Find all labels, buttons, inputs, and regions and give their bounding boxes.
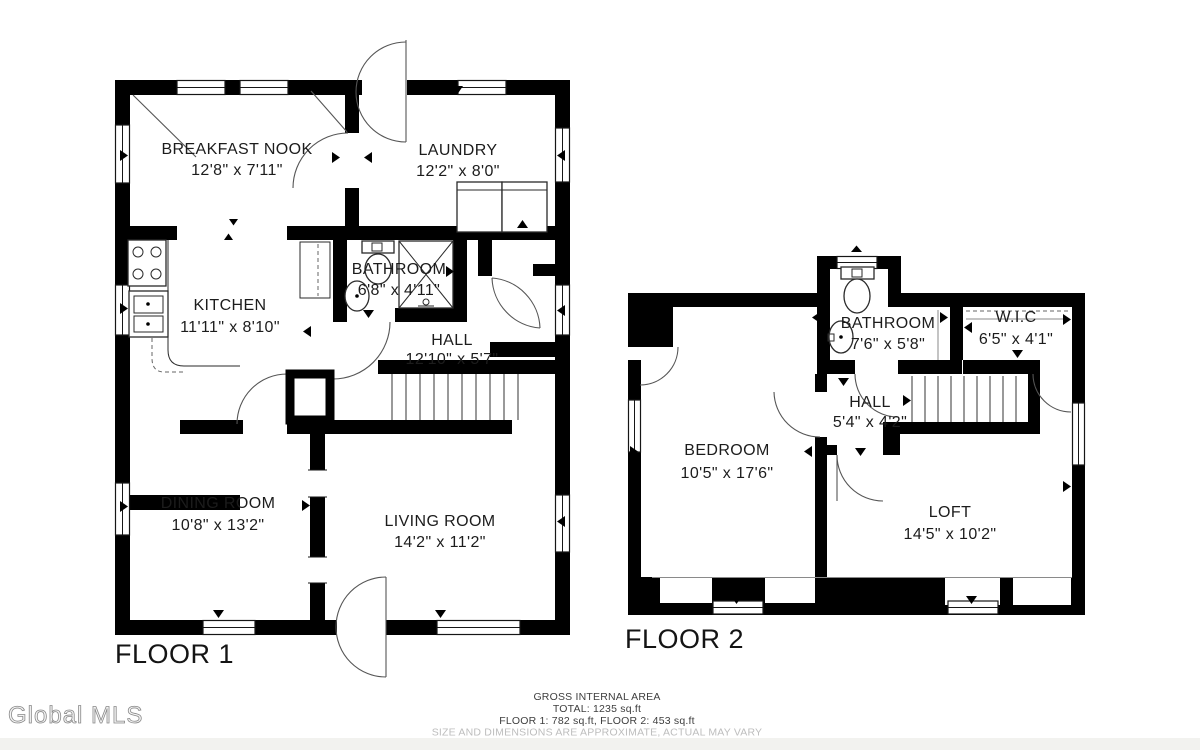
door-swing-arc: [774, 392, 820, 437]
under-stair-closet: [290, 374, 330, 420]
staircase: [912, 376, 1016, 422]
footer-title: GROSS INTERNAL AREA: [533, 691, 660, 703]
room-label-hall2: HALL: [849, 394, 891, 411]
window: [177, 81, 225, 95]
window: [458, 81, 506, 95]
window: [437, 621, 520, 635]
window: [629, 400, 641, 452]
room-dims-bedroom: 10'5" x 17'6": [681, 465, 774, 482]
window: [203, 621, 255, 635]
door-swing-arc: [837, 455, 883, 501]
floorplan-page: BREAKFAST NOOK 12'8" x 7'11" LAUNDRY 12'…: [0, 0, 1200, 750]
room-label-laundry: LAUNDRY: [419, 142, 498, 159]
floor1-plan: BREAKFAST NOOK 12'8" x 7'11" LAUNDRY 12'…: [115, 40, 570, 677]
front-door-opening: [337, 620, 386, 635]
room-dims-kitchen: 11'11" x 8'10": [180, 319, 280, 336]
floor2-plan: BATHROOM 7'6" x 5'8" W.I.C 6'5" x 4'1" H…: [625, 246, 1085, 655]
room-dims-breakfast-nook: 12'8" x 7'11": [191, 162, 283, 179]
room-dims-loft: 14'5" x 10'2": [904, 526, 997, 543]
footer-disclaimer: SIZE AND DIMENSIONS ARE APPROXIMATE, ACT…: [432, 727, 763, 739]
watermark-logo: Global MLS: [8, 702, 143, 729]
room-label-loft: LOFT: [929, 504, 972, 521]
window: [948, 601, 998, 614]
toilet: [841, 267, 874, 313]
room-dims-bathroom1: 6'8" x 4'11": [358, 282, 440, 299]
room-dims-wic: 6'5" x 4'1": [979, 331, 1053, 348]
room-label-bathroom1: BATHROOM: [352, 261, 446, 278]
room-label-wic: W.I.C: [995, 309, 1036, 326]
window: [240, 81, 288, 95]
room-dims-hall1: 12'10" x 5'7": [406, 351, 499, 368]
footer: GROSS INTERNAL AREA TOTAL: 1235 sq.ft FL…: [432, 691, 763, 739]
washer: [457, 182, 502, 232]
stove: [128, 240, 166, 286]
floor1-walls: [115, 80, 570, 635]
kitchen-sink: [129, 291, 168, 337]
floorplan-image: BREAKFAST NOOK 12'8" x 7'11" LAUNDRY 12'…: [0, 0, 1200, 750]
page-bottom-strip: [0, 738, 1200, 750]
footer-floor-areas: FLOOR 1: 782 sq.ft, FLOOR 2: 453 sq.ft: [499, 715, 695, 727]
door-swing-arc: [237, 374, 287, 424]
room-label-hall1: HALL: [431, 332, 473, 349]
room-label-bedroom: BEDROOM: [684, 442, 769, 459]
room-dims-living: 14'2" x 11'2": [394, 534, 486, 551]
floor2-title: FLOOR 2: [625, 624, 744, 654]
floor1-windows: [116, 80, 570, 635]
door-swing-arc: [640, 347, 678, 385]
room-dims-bathroom2: 7'6" x 5'8": [851, 336, 925, 353]
footer-total: TOTAL: 1235 sq.ft: [553, 703, 641, 715]
utility-chase: [300, 242, 330, 298]
floor1-room-labels: BREAKFAST NOOK 12'8" x 7'11" LAUNDRY 12'…: [161, 141, 500, 551]
room-label-bathroom2: BATHROOM: [841, 315, 935, 332]
staircase: [392, 374, 518, 420]
room-label-living: LIVING ROOM: [384, 513, 495, 530]
entry-door-opening: [362, 80, 407, 95]
room-dims-hall2: 5'4" x 4'2": [833, 414, 907, 431]
room-dims-dining: 10'8" x 13'2": [172, 517, 265, 534]
window: [713, 601, 763, 614]
floor1-title: FLOOR 1: [115, 639, 234, 669]
window: [1073, 403, 1085, 465]
room-label-dining: DINING ROOM: [161, 495, 276, 512]
room-dims-laundry: 12'2" x 8'0": [416, 163, 500, 180]
room-label-breakfast-nook: BREAKFAST NOOK: [161, 141, 312, 158]
room-label-kitchen: KITCHEN: [193, 297, 266, 314]
